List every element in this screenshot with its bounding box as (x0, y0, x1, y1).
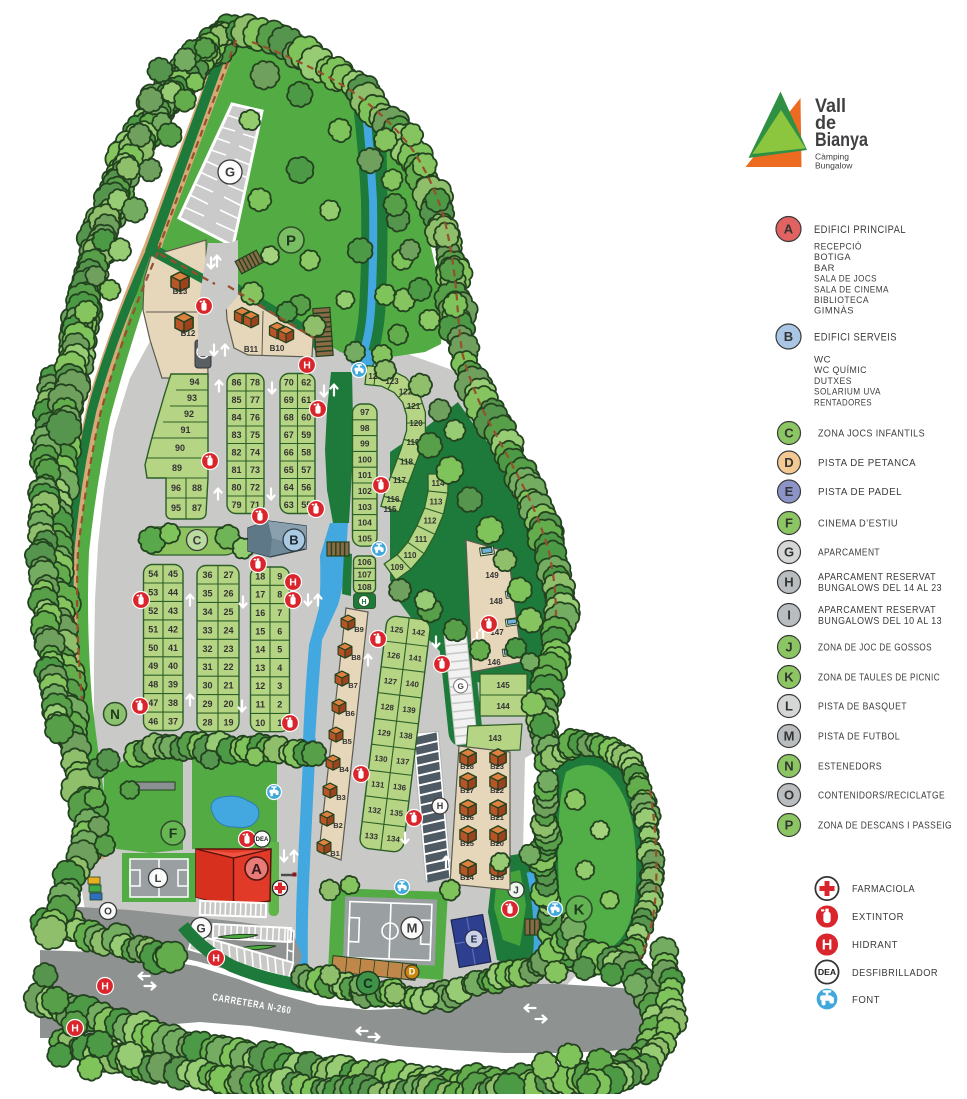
svg-text:39: 39 (168, 680, 178, 690)
svg-text:57: 57 (301, 465, 311, 475)
svg-text:67: 67 (284, 430, 294, 440)
svg-text:B9: B9 (354, 625, 364, 634)
svg-text:107: 107 (357, 570, 371, 580)
svg-text:O: O (104, 907, 112, 918)
svg-text:83: 83 (231, 430, 241, 440)
svg-text:B4: B4 (339, 765, 349, 774)
svg-text:98: 98 (360, 423, 370, 433)
svg-text:140: 140 (405, 679, 420, 690)
svg-text:128: 128 (380, 702, 395, 713)
svg-text:14: 14 (255, 645, 265, 655)
svg-text:110: 110 (404, 551, 417, 560)
svg-text:87: 87 (192, 503, 202, 513)
svg-text:J: J (513, 886, 519, 897)
svg-text:19: 19 (223, 718, 233, 728)
svg-text:2: 2 (277, 700, 282, 710)
svg-text:48: 48 (148, 680, 158, 690)
svg-text:101: 101 (358, 470, 372, 480)
svg-text:13: 13 (255, 663, 265, 673)
svg-text:31: 31 (202, 662, 212, 672)
svg-text:129: 129 (377, 728, 392, 739)
svg-text:B21: B21 (490, 813, 504, 822)
svg-text:G: G (784, 545, 794, 560)
svg-text:145: 145 (496, 681, 510, 690)
svg-text:O: O (784, 788, 794, 803)
svg-text:H: H (784, 575, 793, 590)
svg-text:85: 85 (231, 395, 241, 405)
svg-text:A: A (251, 861, 262, 878)
svg-text:ZONA DE DESCANS I PASSEIG: ZONA DE DESCANS I PASSEIG (818, 820, 952, 832)
svg-text:E: E (785, 484, 794, 499)
svg-text:B: B (289, 533, 298, 548)
svg-text:24: 24 (223, 625, 233, 635)
svg-text:92: 92 (184, 409, 194, 419)
svg-text:10: 10 (255, 718, 265, 728)
svg-text:B14: B14 (460, 873, 475, 882)
svg-text:15: 15 (255, 626, 265, 636)
svg-text:BIBLIOTECA: BIBLIOTECA (814, 295, 869, 306)
svg-text:73: 73 (250, 465, 260, 475)
svg-text:G: G (457, 682, 464, 692)
svg-text:9: 9 (277, 571, 282, 581)
svg-text:PISTA DE PETANCA: PISTA DE PETANCA (818, 457, 916, 469)
svg-text:G: G (225, 165, 235, 180)
svg-text:20: 20 (223, 699, 233, 709)
svg-text:100: 100 (358, 454, 372, 464)
svg-text:12: 12 (255, 681, 265, 691)
svg-text:B3: B3 (336, 793, 346, 802)
svg-text:84: 84 (231, 413, 241, 423)
svg-text:96: 96 (171, 483, 181, 493)
svg-text:50: 50 (148, 643, 158, 653)
svg-text:RENTADORES: RENTADORES (814, 397, 872, 408)
svg-text:91: 91 (180, 425, 190, 435)
svg-text:28: 28 (202, 718, 212, 728)
svg-text:116: 116 (387, 495, 400, 504)
svg-text:B: B (784, 329, 793, 344)
svg-text:B19: B19 (490, 873, 504, 882)
svg-text:52: 52 (148, 606, 158, 616)
svg-text:59: 59 (301, 430, 311, 440)
svg-text:M: M (407, 921, 418, 936)
svg-text:25: 25 (223, 607, 233, 617)
svg-text:EDIFICI SERVEIS: EDIFICI SERVEIS (814, 332, 897, 344)
svg-text:22: 22 (223, 662, 233, 672)
svg-text:K: K (784, 670, 794, 685)
svg-text:80: 80 (231, 483, 241, 493)
svg-text:70: 70 (284, 378, 294, 388)
svg-text:43: 43 (168, 606, 178, 616)
svg-text:141: 141 (408, 653, 423, 664)
svg-text:N: N (784, 759, 793, 774)
svg-text:7: 7 (277, 608, 282, 618)
svg-text:126: 126 (386, 650, 401, 661)
svg-text:69: 69 (284, 395, 294, 405)
svg-text:23: 23 (223, 644, 233, 654)
svg-text:ESTENEDORS: ESTENEDORS (818, 761, 882, 773)
svg-text:94: 94 (189, 377, 199, 387)
svg-text:113: 113 (430, 498, 443, 507)
svg-text:B18: B18 (460, 762, 474, 771)
svg-text:21: 21 (223, 681, 233, 691)
svg-text:134: 134 (386, 834, 401, 845)
svg-text:95: 95 (171, 503, 181, 513)
svg-text:B13: B13 (173, 287, 188, 296)
svg-text:WC: WC (814, 355, 831, 366)
svg-text:16: 16 (255, 608, 265, 618)
svg-text:EDIFICI PRINCIPAL: EDIFICI PRINCIPAL (814, 224, 906, 236)
svg-text:60: 60 (301, 413, 311, 423)
svg-text:144: 144 (496, 702, 510, 711)
svg-text:47: 47 (148, 698, 158, 708)
svg-text:34: 34 (202, 607, 212, 617)
svg-text:72: 72 (250, 483, 260, 493)
svg-text:149: 149 (485, 571, 499, 580)
svg-text:142: 142 (411, 627, 426, 638)
svg-text:B17: B17 (460, 786, 474, 795)
svg-text:RECEPCIÓ: RECEPCIÓ (814, 242, 862, 253)
svg-text:H: H (437, 801, 444, 811)
svg-text:A: A (784, 222, 794, 237)
svg-text:49: 49 (148, 661, 158, 671)
svg-text:B11: B11 (244, 345, 259, 354)
svg-text:B20: B20 (490, 839, 504, 848)
svg-text:30: 30 (202, 681, 212, 691)
svg-text:103: 103 (358, 502, 372, 512)
svg-text:81: 81 (231, 465, 241, 475)
svg-text:99: 99 (360, 439, 370, 449)
svg-text:82: 82 (231, 448, 241, 458)
svg-text:45: 45 (168, 569, 178, 579)
svg-text:B7: B7 (348, 681, 358, 690)
svg-text:58: 58 (301, 448, 311, 458)
svg-text:90: 90 (175, 443, 185, 453)
svg-text:SALA DE JOCS: SALA DE JOCS (814, 274, 877, 285)
svg-text:131: 131 (371, 779, 386, 790)
svg-text:112: 112 (424, 517, 437, 526)
svg-text:ZONA JOCS INFANTILS: ZONA JOCS INFANTILS (818, 428, 925, 440)
svg-text:135: 135 (389, 808, 404, 819)
svg-text:109: 109 (390, 563, 404, 572)
svg-text:FARMACIOLA: FARMACIOLA (852, 883, 915, 895)
svg-text:37: 37 (168, 717, 178, 727)
svg-text:5: 5 (277, 645, 282, 655)
svg-text:I: I (787, 608, 791, 623)
svg-text:143: 143 (488, 734, 502, 743)
svg-text:B16: B16 (460, 813, 474, 822)
svg-text:26: 26 (223, 588, 233, 598)
svg-text:51: 51 (148, 624, 158, 634)
svg-text:17: 17 (255, 590, 265, 600)
svg-text:GIMNÀS: GIMNÀS (814, 306, 854, 317)
svg-text:C: C (193, 533, 202, 547)
svg-text:B22: B22 (490, 786, 504, 795)
svg-text:66: 66 (284, 448, 294, 458)
svg-text:64: 64 (284, 483, 294, 493)
svg-text:29: 29 (202, 699, 212, 709)
svg-text:139: 139 (402, 705, 417, 716)
svg-text:63: 63 (284, 500, 294, 510)
svg-text:B2: B2 (333, 821, 343, 830)
svg-text:75: 75 (250, 430, 260, 440)
svg-text:SOLARIUM UVA: SOLARIUM UVA (814, 387, 881, 398)
svg-text:54: 54 (148, 569, 158, 579)
svg-text:44: 44 (168, 587, 178, 597)
svg-text:Bianya: Bianya (815, 129, 868, 151)
svg-text:B6: B6 (345, 709, 355, 718)
svg-text:65: 65 (284, 465, 294, 475)
svg-text:36: 36 (202, 570, 212, 580)
svg-text:P: P (286, 233, 296, 250)
svg-text:CINEMA D’ESTIU: CINEMA D’ESTIU (818, 518, 898, 530)
svg-text:CONTENIDORS/RECICLATGE: CONTENIDORS/RECICLATGE (818, 790, 945, 802)
svg-text:137: 137 (396, 756, 411, 767)
svg-text:B23: B23 (490, 762, 504, 771)
svg-text:F: F (785, 516, 793, 531)
svg-text:136: 136 (392, 782, 407, 793)
svg-text:133: 133 (364, 831, 379, 842)
svg-text:106: 106 (357, 557, 371, 567)
svg-text:77: 77 (250, 395, 260, 405)
svg-text:3: 3 (277, 681, 282, 691)
svg-text:PISTA DE BASQUET: PISTA DE BASQUET (818, 701, 907, 713)
svg-text:32: 32 (202, 644, 212, 654)
svg-text:125: 125 (390, 625, 405, 636)
svg-text:G: G (196, 921, 205, 935)
svg-text:K: K (574, 902, 585, 919)
svg-text:42: 42 (168, 624, 178, 634)
svg-text:DUTXES: DUTXES (814, 376, 852, 387)
svg-text:SALA DE CINEMA: SALA DE CINEMA (814, 284, 889, 295)
svg-text:86: 86 (231, 378, 241, 388)
svg-text:BUNGALOWS DEL 14 AL 23: BUNGALOWS DEL 14 AL 23 (818, 582, 942, 594)
svg-text:P: P (785, 818, 794, 833)
svg-text:61: 61 (301, 395, 311, 405)
svg-text:89: 89 (172, 463, 182, 473)
svg-text:148: 148 (489, 597, 503, 606)
svg-text:B15: B15 (460, 839, 474, 848)
svg-text:38: 38 (168, 698, 178, 708)
svg-text:Bungalow: Bungalow (815, 161, 853, 171)
svg-text:C: C (363, 976, 373, 991)
svg-text:132: 132 (367, 805, 382, 816)
svg-text:8: 8 (277, 590, 282, 600)
svg-text:56: 56 (301, 483, 311, 493)
svg-text:35: 35 (202, 588, 212, 598)
svg-text:104: 104 (358, 518, 372, 528)
svg-text:ZONA DE JOC DE GOSSOS: ZONA DE JOC DE GOSSOS (818, 642, 932, 654)
svg-text:6: 6 (277, 626, 282, 636)
svg-text:C: C (784, 426, 794, 441)
svg-text:102: 102 (358, 486, 372, 496)
svg-text:117: 117 (393, 476, 406, 485)
svg-text:FONT: FONT (852, 994, 880, 1006)
svg-text:D: D (409, 967, 416, 977)
svg-text:127: 127 (383, 676, 398, 687)
svg-text:76: 76 (250, 413, 260, 423)
svg-text:88: 88 (192, 483, 202, 493)
svg-text:27: 27 (223, 570, 233, 580)
svg-text:118: 118 (400, 458, 413, 467)
svg-text:111: 111 (415, 535, 428, 544)
svg-text:BUNGALOWS DEL 10 AL 13: BUNGALOWS DEL 10 AL 13 (818, 615, 942, 627)
svg-text:53: 53 (148, 587, 158, 597)
svg-text:115: 115 (384, 505, 397, 514)
svg-text:PISTA DE FUTBOL: PISTA DE FUTBOL (818, 731, 900, 743)
svg-text:11: 11 (255, 700, 265, 710)
svg-text:B12: B12 (181, 329, 196, 338)
svg-text:B10: B10 (270, 344, 285, 353)
svg-text:D: D (784, 455, 793, 470)
svg-text:L: L (155, 873, 162, 885)
svg-text:130: 130 (374, 754, 389, 765)
svg-text:146: 146 (487, 658, 501, 667)
svg-text:E: E (471, 935, 478, 946)
svg-text:121: 121 (407, 402, 421, 411)
svg-text:APARCAMENT: APARCAMENT (818, 547, 880, 559)
svg-text:B5: B5 (342, 737, 352, 746)
svg-text:DESFIBRILLADOR: DESFIBRILLADOR (852, 967, 938, 979)
svg-text:40: 40 (168, 661, 178, 671)
svg-text:93: 93 (187, 393, 197, 403)
svg-text:BOTIGA: BOTIGA (814, 252, 851, 263)
svg-text:62: 62 (301, 378, 311, 388)
svg-text:EXTINTOR: EXTINTOR (852, 911, 904, 923)
svg-text:BAR: BAR (814, 263, 835, 274)
svg-text:74: 74 (250, 448, 260, 458)
svg-text:78: 78 (250, 378, 260, 388)
svg-text:79: 79 (231, 500, 241, 510)
svg-text:ZONA DE TAULES DE PICNIC: ZONA DE TAULES DE PICNIC (818, 672, 940, 684)
svg-text:4: 4 (277, 663, 282, 673)
svg-text:97: 97 (360, 407, 370, 417)
svg-text:L: L (785, 699, 793, 714)
svg-text:M: M (784, 729, 795, 744)
svg-text:PISTA DE PADEL: PISTA DE PADEL (818, 486, 902, 498)
svg-text:108: 108 (357, 582, 371, 592)
svg-text:105: 105 (358, 533, 372, 543)
svg-text:H: H (361, 599, 366, 606)
svg-text:B1: B1 (330, 849, 340, 858)
svg-text:120: 120 (409, 419, 423, 428)
svg-text:68: 68 (284, 413, 294, 423)
svg-text:WC QUÍMIC: WC QUÍMIC (814, 365, 867, 376)
svg-text:J: J (785, 640, 792, 655)
svg-text:41: 41 (168, 643, 178, 653)
svg-text:33: 33 (202, 625, 212, 635)
svg-text:N: N (110, 707, 120, 722)
svg-text:B8: B8 (351, 653, 361, 662)
svg-text:46: 46 (148, 717, 158, 727)
svg-text:HIDRANT: HIDRANT (852, 939, 898, 951)
svg-text:F: F (169, 825, 178, 841)
svg-text:138: 138 (399, 730, 414, 741)
